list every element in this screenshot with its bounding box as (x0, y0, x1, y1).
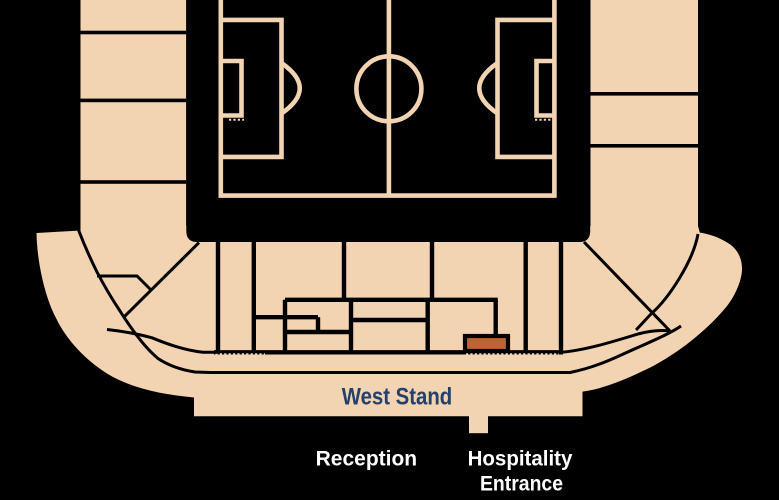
svg-text:West Stand: West Stand (342, 383, 453, 410)
svg-text:Entrance: Entrance (480, 472, 563, 496)
svg-text:Hospitality: Hospitality (468, 447, 573, 471)
svg-text:Reception: Reception (316, 447, 418, 471)
